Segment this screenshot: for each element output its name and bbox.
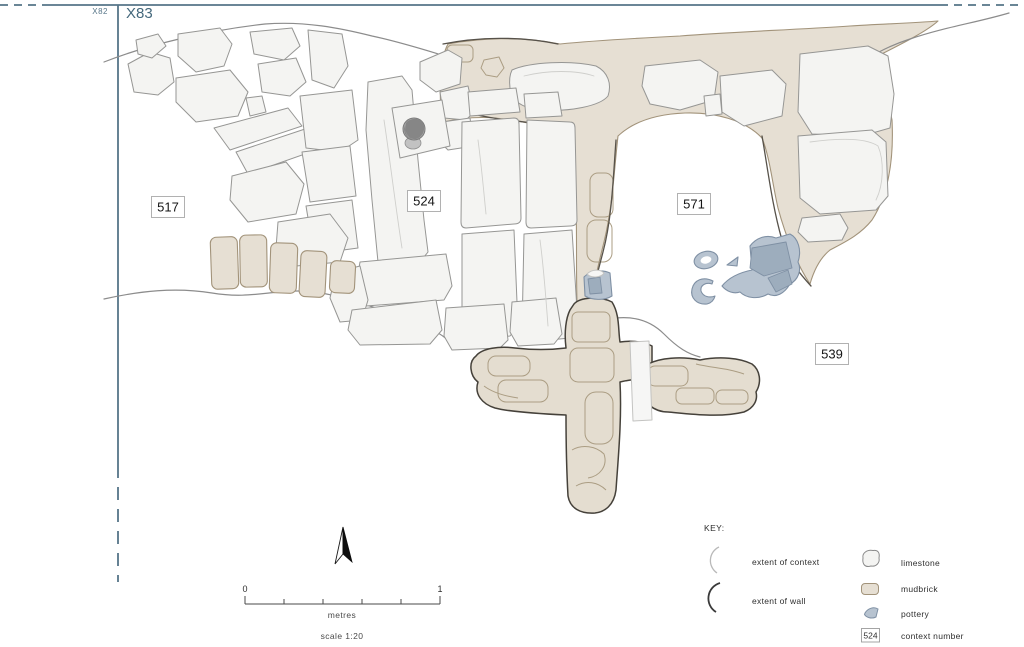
limestone-stone [300, 90, 358, 152]
context-number-swatch-text: 524 [863, 631, 877, 641]
limestone-stone [136, 34, 166, 58]
key-label-limestone: limestone [901, 558, 940, 568]
limestone-stone [798, 46, 894, 136]
context-label-571: 571 [678, 194, 711, 215]
pottery-finds [584, 234, 800, 304]
limestone-stone [230, 162, 304, 222]
context-number: 571 [683, 197, 705, 212]
mudbrick-right-arm [636, 358, 759, 415]
limestone-stone [308, 30, 348, 88]
key-title: KEY: [704, 523, 725, 533]
limestone-slab [356, 254, 452, 306]
key-label-mudbrick: mudbrick [901, 584, 938, 594]
limestone-stone [704, 94, 722, 116]
key-label-pottery: pottery [901, 609, 930, 619]
site-plan-svg: X82 X83 [0, 0, 1024, 647]
mudbrick-swatch-icon [862, 584, 879, 595]
limestone-stone [178, 28, 232, 72]
scale-unit-label: metres [328, 610, 356, 620]
limestone-slab [510, 298, 562, 346]
limestone-stone [420, 50, 462, 92]
pottery-swatch-icon [865, 608, 879, 618]
grid-label-x82: X82 [92, 7, 108, 16]
limestone-slab [444, 304, 508, 350]
limestone-stone [128, 52, 174, 95]
pottery-cluster-571 [692, 234, 800, 304]
context-number: 539 [821, 347, 843, 362]
context-number: 524 [413, 194, 435, 209]
scale-bar: 0 1 metres scale 1:20 [242, 584, 442, 641]
pottery-sherd-shading [588, 277, 602, 294]
pottery-fragment [727, 257, 738, 266]
context-label-517: 517 [152, 197, 185, 218]
key-label-extent-of-context: extent of context [752, 557, 820, 567]
extent-of-wall-icon [708, 583, 720, 612]
limestone-slab [468, 88, 520, 116]
limestone-stone [798, 214, 848, 242]
mudbrick-brick [269, 243, 298, 294]
mudbrick-brick [240, 235, 268, 287]
limestone-stone [720, 70, 786, 126]
pottery-c-sherd [692, 279, 715, 304]
mudbrick-brick [329, 260, 356, 293]
north-arrow-left-half [335, 527, 343, 564]
grid-label-x83: X83 [126, 5, 153, 22]
north-arrow-icon [335, 527, 352, 564]
key-label-extent-of-wall: extent of wall [752, 596, 806, 606]
limestone-stone [258, 58, 306, 96]
extent-of-context-icon [710, 547, 719, 573]
scale-start-label: 0 [242, 584, 247, 594]
context-label-524: 524 [408, 191, 441, 212]
pottery-sherd-small [584, 270, 612, 299]
limestone-swatch-icon [863, 550, 879, 566]
mudbrick-arm [636, 358, 759, 415]
limestone-slab [461, 118, 521, 228]
context-label-539: 539 [816, 344, 849, 365]
limestone-stone [798, 130, 888, 214]
key-label-context-number: context number [901, 631, 964, 641]
key-legend: KEY: extent of context extent of wall li… [704, 523, 964, 642]
scale-ratio-label: scale 1:20 [321, 631, 364, 641]
scale-end-label: 1 [437, 584, 442, 594]
mudbrick-brick [299, 250, 327, 297]
limestone-stone [176, 70, 248, 122]
context-number: 517 [157, 200, 179, 215]
limestone-slab [526, 120, 577, 228]
limestone-slab [524, 92, 562, 118]
limestone-plank [630, 341, 652, 421]
limestone-stone [246, 96, 266, 116]
north-arrow-right-half [343, 527, 352, 562]
site-plan-canvas: X82 X83 [0, 0, 1024, 647]
limestone-stone [250, 28, 300, 60]
limestone-stone [302, 146, 356, 202]
mudbrick-brick [210, 237, 239, 290]
